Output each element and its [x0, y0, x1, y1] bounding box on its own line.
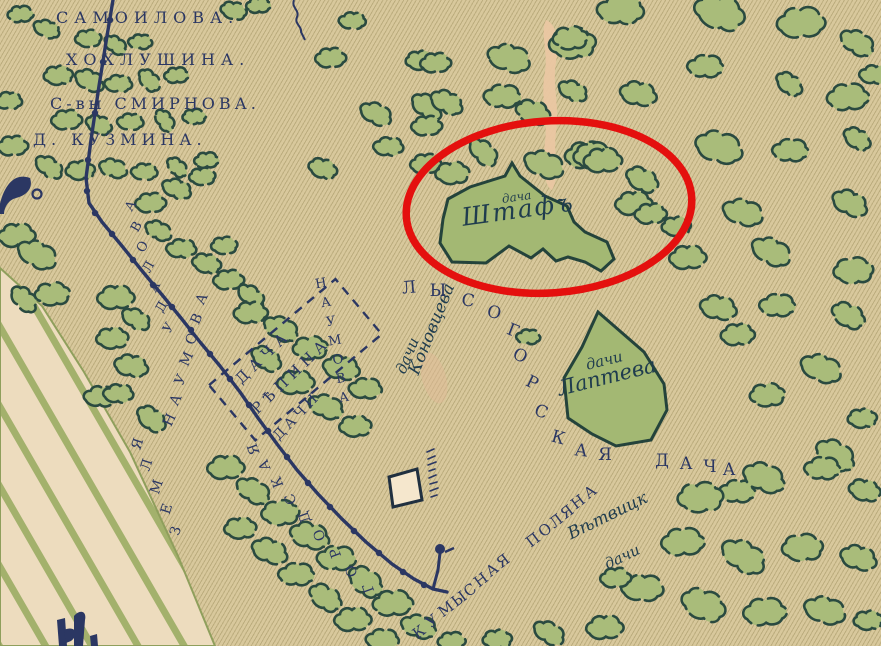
toponym-letter-naumova-east: М: [327, 332, 343, 349]
tree-clump: [97, 155, 130, 182]
tree-clump: [135, 65, 165, 96]
tree-clump: [484, 85, 521, 108]
tree-clump: [0, 92, 22, 109]
label-smirnova: С-вы СМИРНОВА.: [50, 94, 260, 113]
tree-clump: [840, 122, 875, 155]
tree-clump: [189, 168, 215, 185]
tree-clump: [349, 378, 382, 398]
tree-clump: [435, 162, 469, 185]
tree-clump: [246, 0, 271, 13]
tree-clump: [804, 457, 840, 479]
tree-clump: [211, 237, 237, 254]
tree-clump: [797, 349, 846, 388]
illegible-tiny-script: [427, 449, 438, 497]
tree-clump: [8, 6, 34, 22]
tree-clump: [128, 34, 152, 49]
tree-clump: [772, 67, 807, 101]
tree-clump: [743, 598, 787, 625]
tree-clump: [747, 231, 795, 271]
tree-clump: [104, 75, 132, 92]
tree-clump: [827, 296, 869, 334]
tree-clump: [801, 592, 848, 628]
tree-clump: [131, 164, 158, 180]
tree-clump: [721, 324, 755, 345]
tree-clump: [759, 294, 795, 316]
toponym-letter-lysogorskaya-dacha: А: [680, 454, 693, 474]
toponym-letter-naumova-east: А: [320, 295, 332, 311]
tree-clump: [97, 285, 134, 308]
tree-clump: [112, 351, 151, 381]
toponym-letter-lysogorskaya-dacha: Д: [655, 451, 669, 471]
building-square: [389, 469, 422, 507]
tree-clump: [339, 415, 371, 436]
tree-clump: [373, 590, 413, 615]
tree-clump: [484, 40, 533, 77]
label-samoilova: САМОИЛОВА.: [56, 8, 239, 27]
tree-clump: [687, 55, 723, 77]
tree-clump: [828, 184, 872, 223]
tree-clump: [777, 7, 826, 37]
tree-clump: [261, 500, 299, 525]
tree-clump: [678, 482, 724, 512]
toponym-letter-lysogorskaya-dacha: Л: [401, 277, 417, 298]
tree-clump: [833, 257, 873, 283]
tree-clump: [836, 24, 878, 61]
toponym-letter-lysogorskaya-dacha: С: [460, 290, 476, 312]
tree-clump: [600, 568, 631, 588]
tree-clump: [697, 291, 739, 323]
toponym-letter-lysogorskaya-dacha: А: [574, 440, 589, 461]
tree-clump: [142, 216, 175, 245]
tree-clump: [135, 193, 166, 213]
tree-clump: [689, 0, 749, 37]
toponym-letter-naumova-east: А: [338, 390, 350, 406]
tree-clump: [373, 137, 403, 155]
tree-clump: [334, 607, 371, 630]
tree-clump: [584, 148, 623, 172]
tree-clump: [339, 12, 366, 29]
tree-clump: [720, 195, 766, 230]
tree-clump: [483, 629, 512, 646]
tree-clump: [669, 245, 706, 268]
tree-clump: [530, 616, 569, 646]
tree-clump: [635, 203, 667, 223]
tree-clump: [117, 114, 144, 130]
tree-clump: [854, 610, 881, 629]
tree-clump: [66, 160, 95, 179]
tree-clump: [166, 239, 196, 257]
tree-clump: [516, 329, 540, 344]
tree-clump: [224, 517, 256, 538]
tree-clump: [163, 153, 191, 181]
tree-clump: [661, 528, 705, 555]
tree-clump: [438, 632, 466, 646]
tree-clump: [772, 139, 808, 161]
tree-clump: [357, 97, 396, 129]
tree-clump: [278, 563, 314, 585]
tree-clump: [555, 76, 590, 106]
label-khokhlushina: ХОХЛУШИНА.: [66, 50, 250, 69]
map-canvas: САМОИЛОВА. ХОХЛУШИНА. С-вы СМИРНОВА. Д. …: [0, 0, 881, 646]
tree-clump: [306, 154, 340, 182]
toponym-letter-naumova-east: Н: [314, 276, 328, 293]
tree-clump: [520, 145, 567, 183]
tree-clump: [782, 534, 823, 561]
toponym-letter-lysogorskaya-dacha: А: [723, 460, 736, 480]
tree-clump: [420, 53, 451, 73]
tree-clump: [553, 26, 588, 49]
tree-clump: [96, 327, 128, 348]
tree-clump: [716, 532, 771, 581]
tree-clump: [691, 124, 747, 169]
tree-clump: [846, 476, 881, 505]
tree-clump: [164, 67, 189, 83]
tree-clump: [750, 383, 785, 406]
toponym-letter-lysogorskaya-dacha: Я: [598, 445, 612, 465]
stream-line: [293, 0, 305, 40]
tree-clump: [315, 48, 346, 68]
tree-clump: [248, 532, 292, 569]
tree-clump: [676, 581, 730, 628]
toponym-letter-lysogorskaya-dacha: Ы: [430, 281, 447, 301]
tree-clump: [837, 540, 880, 575]
tree-clump: [586, 615, 623, 638]
tree-clump: [597, 0, 644, 24]
tree-clump: [617, 77, 659, 109]
label-kuzmina: Д. КУЗМИНА.: [33, 130, 207, 149]
tree-clump: [207, 455, 244, 478]
tree-clump: [35, 282, 70, 305]
toponym-letter-lysogorskaya-dacha: Ч: [703, 457, 716, 477]
tree-clump: [31, 151, 66, 183]
tree-clump: [194, 152, 219, 168]
tree-clump: [827, 84, 869, 111]
tree-clump: [75, 30, 101, 47]
tree-clump: [0, 136, 28, 156]
map-margin-stripes: [0, 268, 215, 646]
tree-clump: [366, 629, 399, 646]
tree-clump: [234, 302, 268, 323]
tree-clump: [859, 65, 881, 83]
tree-clump: [848, 408, 877, 427]
